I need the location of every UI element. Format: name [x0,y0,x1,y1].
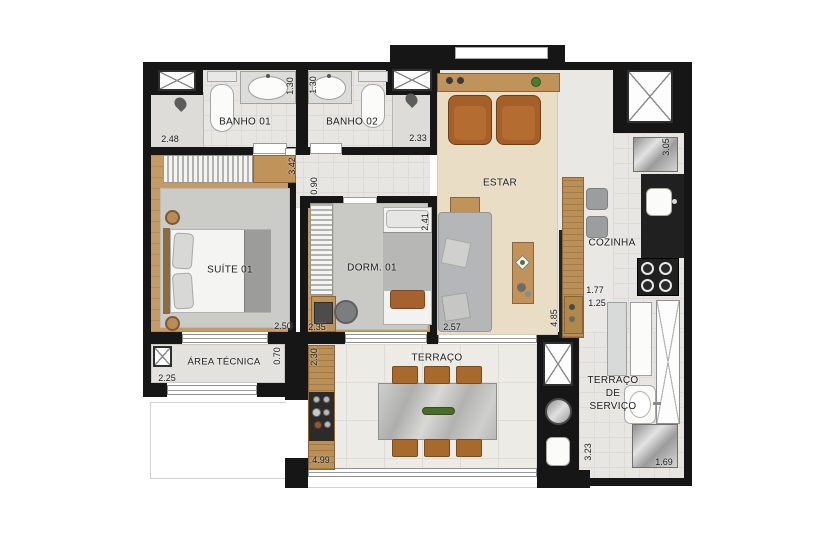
room-label-terraco-servico: TERRAÇO DE SERVIÇO [570,374,656,413]
sofa-pillow [441,238,472,269]
dim-323: 3.23 [583,443,593,461]
dining-chair [392,366,418,384]
suite-pillow [172,232,194,269]
burner-icon [641,262,654,275]
banho01-door [253,143,287,154]
grill-knob-icon [324,421,331,428]
dim-230: 2.30 [309,348,319,366]
dim-499: 4.99 [312,455,330,465]
dim-235: 2.35 [308,322,326,332]
area-tecnica-louver [167,385,257,395]
servico-sliding-panel [630,302,652,376]
dim-130a: 1.30 [285,77,295,95]
shaft-terraco [543,342,573,386]
room-label-suite: SUÍTE 01 [207,265,253,276]
shaft-area-tecnica [153,346,172,367]
dim-225: 2.25 [158,373,176,383]
sideboard-decor [457,77,464,84]
dim-257: 2.57 [443,322,461,332]
wall-under-banho01 [151,147,253,155]
dorm-blanket [383,232,432,291]
bar-counter-edge [559,230,562,338]
servico-sliding-panel [607,302,627,376]
wall-left [143,62,151,397]
bar-cabinet-decor [569,316,575,322]
room-label-estar: ESTAR [483,178,517,189]
dorm-chair [334,300,358,324]
wall-under-banho02 [296,147,310,155]
suite-wardrobe-hangers [163,155,253,183]
grill-knob-icon [314,421,322,429]
suite-bed-headboard [163,228,170,314]
faucet-icon [327,74,331,78]
wall-dorm-left [300,208,308,332]
slab-line [150,402,286,403]
dim-248: 2.48 [161,134,179,144]
dim-233: 2.33 [409,133,427,143]
toilet-tank [358,71,388,82]
banho02-door [310,143,342,154]
grill-cylinder [545,398,572,425]
room-label-terraco: TERRAÇO [412,353,463,364]
room-label-dorm: DORM. 01 [347,263,397,274]
suite-nightstand [165,210,180,225]
room-label-cozinha: COZINHA [588,238,635,249]
room-label-banho02: BANHO 02 [326,117,378,128]
dim-305: 3.05 [661,138,671,156]
table-centerpiece-plant [422,407,455,415]
armchair-seat [454,106,486,140]
dim-125: 1.25 [588,298,606,308]
table-decor [525,291,531,297]
facade-niche [455,47,548,59]
dim-169: 1.69 [655,457,673,467]
dim-250: 2.50 [274,321,292,331]
slab-line [150,402,151,479]
grill-knob-icon [323,409,330,416]
armchair-seat [502,106,535,140]
shaft-topleft [158,70,196,91]
sideboard-decor [446,77,453,84]
room-label-terraco-servico-l3: SERVIÇO [570,400,656,413]
servico-duct [656,300,680,424]
sofa-side-table [450,197,480,213]
wall-areatecnica-bottom [257,383,285,397]
dim-241: 2.41 [420,213,430,231]
dorm-cushion [390,290,425,309]
wall-bottom-block [537,470,590,488]
column-terraco-left [285,332,308,400]
kitchen-counter [641,174,684,258]
toilet-tank [207,71,237,82]
dim-070: 0.70 [272,347,282,365]
suite-nightstand [165,316,180,331]
dim-177: 1.77 [586,285,604,295]
dorm-window [345,334,427,343]
plant-icon [531,77,541,87]
room-label-terraco-servico-l2: DE [570,387,656,400]
suite-pillow [172,272,194,309]
floor-plan: BANHO 01 BANHO 02 SUÍTE 01 DORM. 01 ESTA… [0,0,838,554]
burner-icon [659,262,672,275]
dining-chair [456,366,482,384]
grill-sink [546,437,570,466]
bar-cabinet-decor [569,304,575,310]
room-label-terraco-servico-l1: TERRAÇO [570,374,656,387]
column-terraco-corner [285,458,308,488]
kitchen-faucet-icon [672,199,677,204]
burner-icon [659,279,672,292]
room-label-banho01: BANHO 01 [219,117,271,128]
kitchen-sink [646,188,672,216]
bar-cabinet [564,296,583,334]
dim-485: 4.85 [549,309,559,327]
table-decor [517,283,526,292]
grill-knob-icon [313,396,320,403]
dorm-monitor [314,302,333,324]
burner-icon [641,279,654,292]
wall-areatecnica-bottom [143,383,167,397]
fridge [633,137,678,172]
suite-window [182,334,268,343]
dorm-closet-hangers [310,203,333,295]
table-decor-green [520,260,525,265]
dining-chair [392,439,418,457]
wall-under-banho02 [342,147,430,155]
dining-chair [424,439,450,457]
faucet-icon [266,74,270,78]
estar-sideboard [437,73,560,92]
sofa-pillow [441,292,471,322]
dining-chair [424,366,450,384]
bar-stool [586,188,608,210]
wall-between-banhos [296,62,308,155]
room-label-area-tecnica: ÁREA TÉCNICA [187,357,260,368]
grill-knob-icon [323,396,330,403]
terraco-railing [308,468,537,477]
dining-chair [456,439,482,457]
dim-342: 3.42 [287,157,297,175]
slab-line [308,487,537,488]
sink-basin [248,76,288,100]
grill-knob-icon [312,408,321,417]
shaft-banho02 [392,69,432,91]
dim-090: 0.90 [309,177,319,195]
dim-130b: 1.30 [308,76,318,94]
bar-stool [586,216,608,238]
wall-suite-bottom [143,332,182,344]
shaft-topright [627,70,673,123]
wall-servico-bottom [590,478,692,486]
